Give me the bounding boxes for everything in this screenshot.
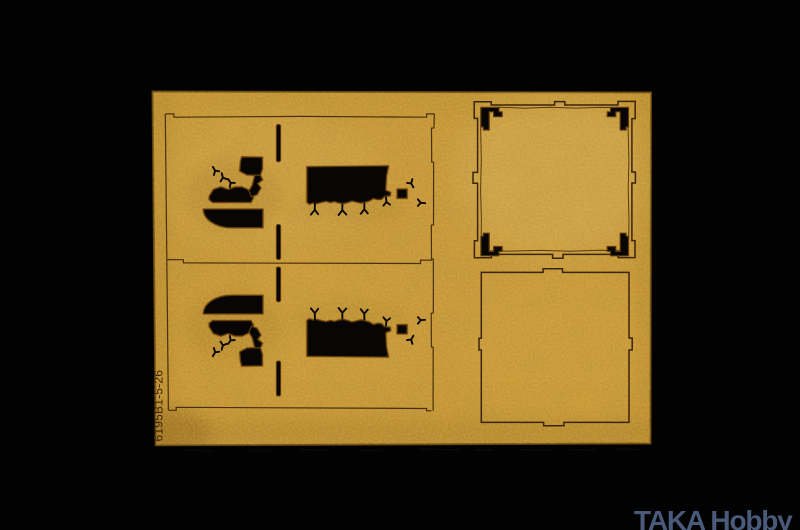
svg-text:6195B1-5-26: 6195B1-5-26 [152, 370, 166, 442]
